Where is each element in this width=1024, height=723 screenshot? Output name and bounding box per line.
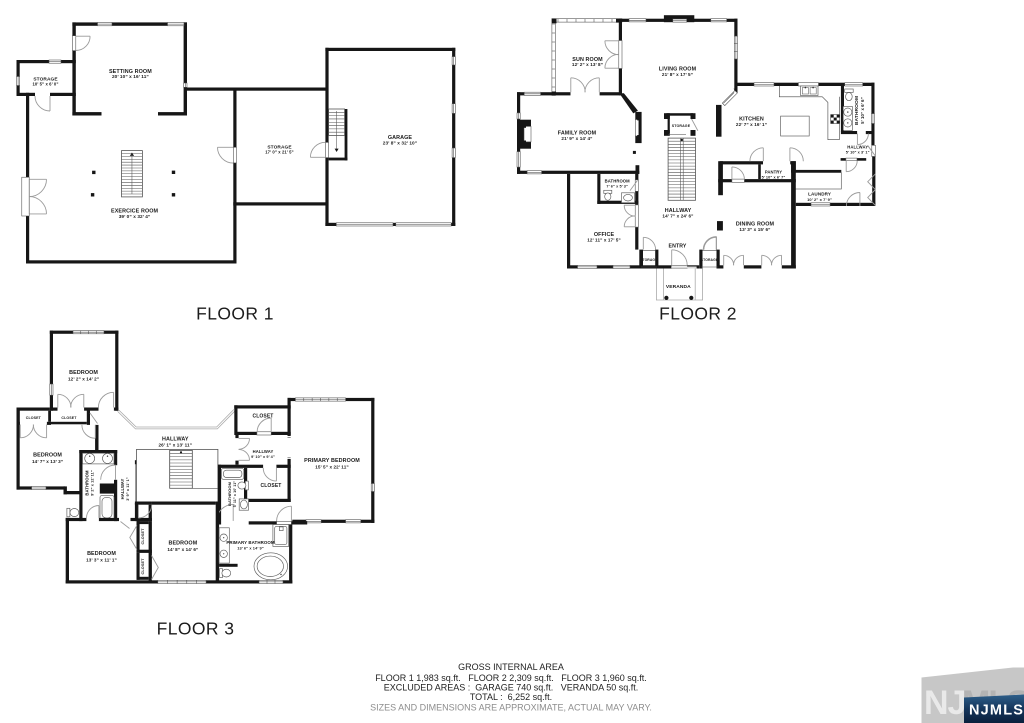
svg-text:12’ 2” x 13’ 8”: 12’ 2” x 13’ 8” xyxy=(572,62,603,67)
svg-text:FLOOR 3: FLOOR 3 xyxy=(157,619,235,639)
svg-text:9’ 2” x 12’ 11”: 9’ 2” x 12’ 11” xyxy=(91,470,95,496)
svg-text:SIZES AND DIMENSIONS ARE APPRO: SIZES AND DIMENSIONS ARE APPROXIMATE, AC… xyxy=(370,703,652,713)
svg-text:BEDROOM: BEDROOM xyxy=(33,453,62,459)
svg-text:20’ 10” x 16’ 11”: 20’ 10” x 16’ 11” xyxy=(112,74,149,79)
svg-text:TOTAL : 6,252 sq.ft.: TOTAL : 6,252 sq.ft. xyxy=(470,692,552,702)
svg-text:3’ 9” x 11’ 1”: 3’ 9” x 11’ 1” xyxy=(126,477,130,501)
svg-text:VERANDA: VERANDA xyxy=(666,284,691,290)
svg-text:13’ 6” x 14’ 9”: 13’ 6” x 14’ 9” xyxy=(237,545,264,550)
svg-text:10’ 2” x 7’ 9”: 10’ 2” x 7’ 9” xyxy=(807,197,832,202)
svg-text:STORAGE: STORAGE xyxy=(701,258,719,262)
svg-text:LAUNDRY: LAUNDRY xyxy=(808,192,831,197)
svg-text:BEDROOM: BEDROOM xyxy=(168,541,197,547)
svg-text:CLOSET: CLOSET xyxy=(61,416,77,420)
svg-text:BATHROOM: BATHROOM xyxy=(227,481,232,506)
svg-text:PANTRY: PANTRY xyxy=(765,170,782,175)
svg-text:BEDROOM: BEDROOM xyxy=(69,370,98,376)
svg-text:5’ 10” x 6’ 7”: 5’ 10” x 6’ 7” xyxy=(762,176,786,180)
svg-text:21’ 9” x 14’ 4”: 21’ 9” x 14’ 4” xyxy=(561,136,592,141)
svg-text:CLOSET: CLOSET xyxy=(141,558,145,575)
svg-text:HALLWAY: HALLWAY xyxy=(120,479,125,500)
svg-text:HALLWAY: HALLWAY xyxy=(253,449,274,454)
svg-text:HALLWAY: HALLWAY xyxy=(847,145,868,150)
svg-text:BEDROOM: BEDROOM xyxy=(87,551,116,557)
svg-text:NJMLS: NJMLS xyxy=(969,703,1024,719)
svg-text:14’ 7” x 13’ 3”: 14’ 7” x 13’ 3” xyxy=(32,459,63,464)
svg-text:5’ 10” x 3’ 1”: 5’ 10” x 3’ 1” xyxy=(846,151,870,155)
svg-text:12’ 11” x 17’ 5”: 12’ 11” x 17’ 5” xyxy=(587,237,621,242)
svg-text:FLOOR 2: FLOOR 2 xyxy=(659,304,737,324)
svg-text:21’ 8” x 17’ 5”: 21’ 8” x 17’ 5” xyxy=(662,72,693,77)
svg-text:GROSS INTERNAL AREA: GROSS INTERNAL AREA xyxy=(458,662,564,672)
svg-text:7’ 6” x 5’ 3”: 7’ 6” x 5’ 3” xyxy=(606,184,628,188)
svg-text:15’ 5” x 22’ 11”: 15’ 5” x 22’ 11” xyxy=(315,465,349,470)
svg-text:39’ 0” x 32’ 4”: 39’ 0” x 32’ 4” xyxy=(119,214,151,219)
svg-text:CLOSET: CLOSET xyxy=(253,414,274,420)
svg-text:17’ 0” x 21’ 5”: 17’ 0” x 21’ 5” xyxy=(265,149,294,154)
svg-text:NJ: NJ xyxy=(924,684,965,722)
svg-text:26’ 1” x 13’ 11”: 26’ 1” x 13’ 11” xyxy=(159,443,193,448)
svg-text:CLOSET: CLOSET xyxy=(141,528,145,545)
svg-text:CLOSET: CLOSET xyxy=(261,483,282,489)
svg-text:5’ 10” x 6’ 6”: 5’ 10” x 6’ 6” xyxy=(860,97,865,124)
svg-text:23’ 8” x 32’ 10”: 23’ 8” x 32’ 10” xyxy=(383,140,417,145)
svg-text:10’ 5” x 6’ 0”: 10’ 5” x 6’ 0” xyxy=(32,82,58,87)
svg-text:CLOSET: CLOSET xyxy=(26,416,42,420)
svg-text:13’ 3” x 15’ 6”: 13’ 3” x 15’ 6” xyxy=(739,227,770,232)
svg-text:5’ 11” x 10’ 11”: 5’ 11” x 10’ 11” xyxy=(233,481,237,507)
svg-text:14’ 7” x 24’ 6”: 14’ 7” x 24’ 6” xyxy=(662,213,693,218)
svg-text:22’ 7” x 16’ 1”: 22’ 7” x 16’ 1” xyxy=(736,122,767,127)
svg-text:9’ 10” x 9’ 4”: 9’ 10” x 9’ 4” xyxy=(251,455,275,459)
svg-text:13’ 3” x 11’ 1”: 13’ 3” x 11’ 1” xyxy=(86,558,117,563)
svg-text:PRIMARY BEDROOM: PRIMARY BEDROOM xyxy=(304,458,360,464)
svg-text:PRIMARY BATHROOM: PRIMARY BATHROOM xyxy=(226,540,275,545)
svg-text:STORAGE: STORAGE xyxy=(640,258,658,262)
svg-text:STORAGE: STORAGE xyxy=(672,124,691,128)
svg-text:EXCLUDED AREAS : GARAGE 740 s: EXCLUDED AREAS : GARAGE 740 sq.ft. VERAN… xyxy=(384,683,639,693)
svg-text:FLOOR 1: FLOOR 1 xyxy=(196,304,274,324)
svg-text:BATHROOM: BATHROOM xyxy=(84,470,89,496)
svg-text:14’ 8” x 14’ 6”: 14’ 8” x 14’ 6” xyxy=(167,547,198,552)
svg-text:FLOOR 1 1,983 sq.ft. FLOOR 2: FLOOR 1 1,983 sq.ft. FLOOR 2 2,309 sq.ft… xyxy=(375,673,647,683)
svg-text:12’ 2” x 14’ 2”: 12’ 2” x 14’ 2” xyxy=(68,377,99,382)
svg-text:BATHROOM: BATHROOM xyxy=(605,179,631,184)
svg-text:ENTRY: ENTRY xyxy=(669,244,687,250)
